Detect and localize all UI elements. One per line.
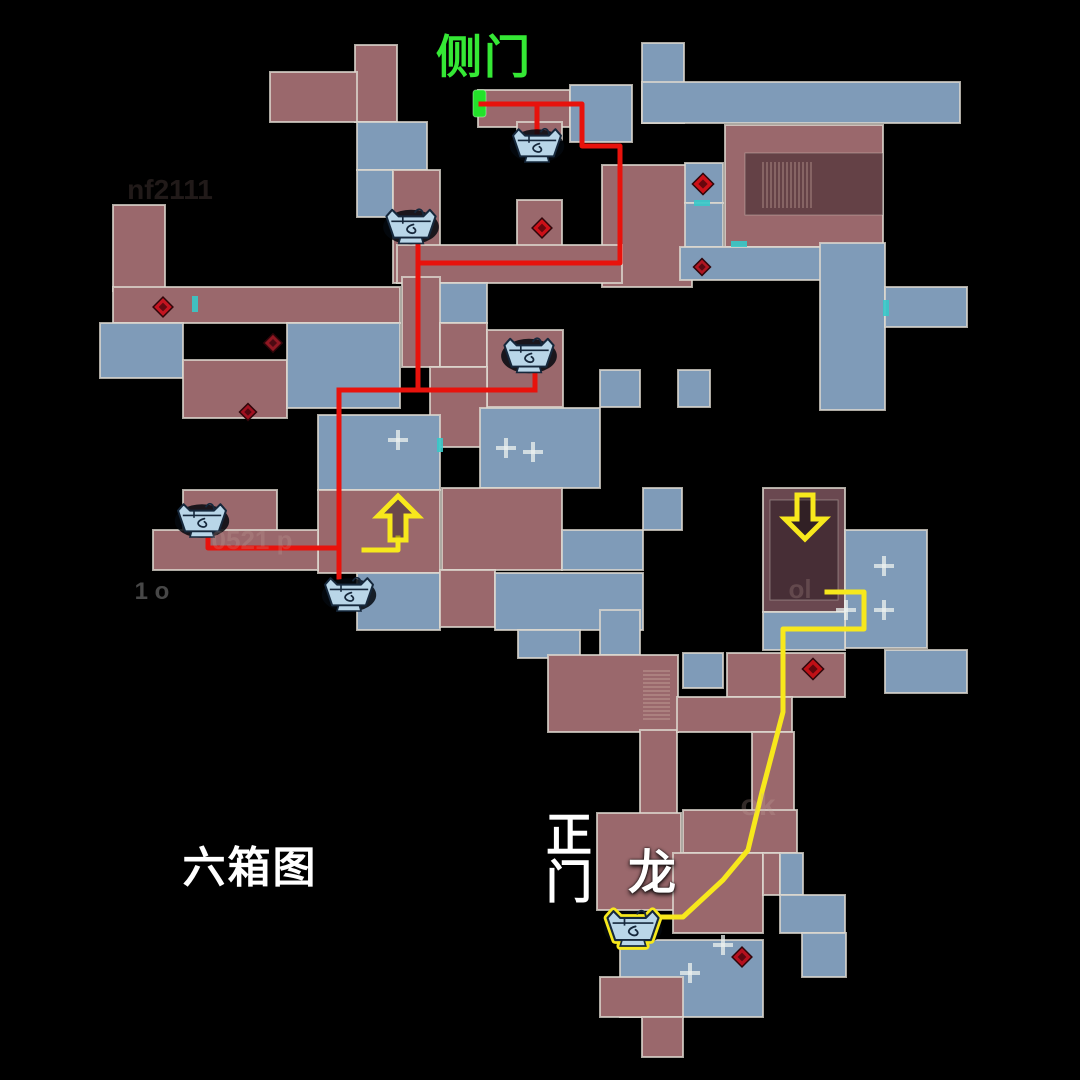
map-room-blue <box>802 933 846 977</box>
map-room-blue <box>820 243 885 410</box>
map-room-blue <box>643 488 682 530</box>
merchant-chest-icon <box>175 504 229 538</box>
map-room-blue <box>100 323 183 378</box>
map-room-blue <box>562 530 643 570</box>
map-room-red <box>440 570 495 627</box>
merchant-chest-icon <box>604 911 662 947</box>
map-room-blue <box>287 323 400 408</box>
map-room-red <box>113 205 165 291</box>
map-room-red <box>642 1017 683 1057</box>
map-room-red <box>183 360 287 418</box>
castle-treasure-map <box>0 0 1080 1080</box>
map-room-blue <box>518 630 580 658</box>
room-inner-shade <box>745 153 883 215</box>
map-room-blue <box>357 122 427 170</box>
merchant-chest-icon <box>383 209 439 244</box>
map-room-red <box>440 323 487 367</box>
wall-cross-v <box>721 935 725 955</box>
map-room-red <box>355 45 397 122</box>
chest-foot <box>517 367 542 373</box>
map-room-red <box>600 977 683 1017</box>
chest-foot <box>620 940 646 946</box>
merchant-chest-icon <box>501 338 557 373</box>
merchant-chest-icon <box>510 129 564 163</box>
map-room-red <box>442 488 562 570</box>
wall-cross-v <box>504 438 508 458</box>
item-diamond-icon <box>264 334 282 352</box>
wall-cross-v <box>688 963 692 983</box>
map-room-red <box>318 490 440 573</box>
map-room-red <box>402 277 440 367</box>
wall-cross-v <box>844 600 848 620</box>
wall-cross-v <box>882 600 886 620</box>
game-map-screen: 侧门 六箱图 正 门 龙 nf21110521 pokol1 o <box>0 0 1080 1080</box>
door-marker <box>731 241 747 247</box>
chest-foot <box>525 156 549 162</box>
door-marker <box>694 200 710 206</box>
map-room-red <box>597 813 681 910</box>
wall-cross-v <box>396 430 400 450</box>
wall-cross-v <box>531 442 535 462</box>
map-room-blue <box>642 82 960 123</box>
door-marker <box>883 300 889 316</box>
chest-foot <box>337 605 361 611</box>
merchant-chest-icon <box>322 578 376 612</box>
map-room-blue <box>678 370 710 407</box>
chest-foot <box>190 531 214 537</box>
map-room-red <box>727 653 845 697</box>
map-room-red <box>763 853 780 895</box>
map-room-blue <box>570 85 632 142</box>
map-room-blue <box>780 895 845 933</box>
door-marker <box>192 296 198 312</box>
map-room-red <box>270 72 357 122</box>
map-room-blue <box>318 415 440 490</box>
map-room-red <box>548 655 678 732</box>
map-room-red <box>640 730 677 815</box>
chest-foot <box>399 238 424 244</box>
map-room-red <box>673 853 763 933</box>
map-room-blue <box>357 170 393 217</box>
map-room-blue <box>600 370 640 407</box>
map-room-blue <box>885 287 967 327</box>
map-room-blue <box>683 653 723 688</box>
map-room-red <box>683 810 797 853</box>
map-room-blue <box>885 650 967 693</box>
map-room-blue <box>600 610 640 655</box>
map-room-red <box>677 697 792 732</box>
wall-cross-v <box>882 556 886 576</box>
map-room-blue <box>780 853 803 895</box>
door-marker <box>437 438 443 452</box>
map-room-blue <box>685 203 723 247</box>
